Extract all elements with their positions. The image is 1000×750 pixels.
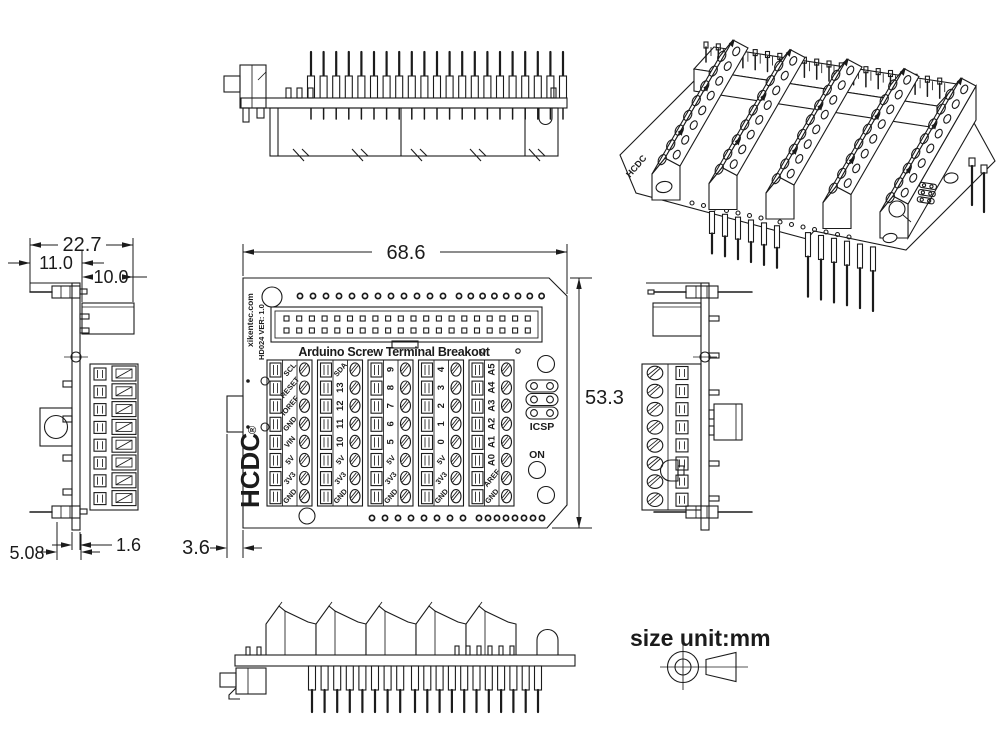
led-front (537, 630, 558, 656)
terminal-label: 6 (385, 421, 396, 426)
terminal-label: A4 (486, 381, 497, 394)
projection-symbol-icon (660, 645, 748, 690)
terminal-label: 3 (436, 385, 447, 390)
dim-pin-pitch: 5.08 (9, 543, 44, 563)
isometric-view: HCDC (620, 39, 995, 311)
brand-url: xikentec.com (245, 293, 255, 347)
dim-pcb-thickness: 1.6 (116, 535, 141, 555)
technical-drawing-page: 22.7 11.0 10.0 5.08 1.6 (0, 0, 1000, 750)
terminal-block-front (366, 606, 416, 655)
terminal-label: 12 (335, 400, 346, 411)
terminal-label: 2 (436, 403, 447, 408)
dim-left-pin-offset: 11.0 (39, 253, 73, 273)
board-title: Arduino Screw Terminal Breakout (298, 345, 490, 359)
terminal-label: 10 (335, 437, 346, 448)
unit-note: size unit:mm (630, 625, 771, 690)
on-led-label: ON (529, 449, 545, 461)
terminal-block-front (316, 606, 366, 655)
terminal-label: 7 (385, 403, 396, 408)
main-top-view: Arduino Screw Terminal Breakout xikentec… (227, 278, 567, 528)
size-unit-label: size unit:mm (630, 625, 771, 651)
drawing-sheet: 22.7 11.0 10.0 5.08 1.6 (0, 0, 1000, 750)
terminal-label: A2 (486, 418, 497, 430)
terminal-label: 5 (385, 439, 396, 445)
terminal-label: A5 (486, 363, 497, 376)
logo-hcdc: HCDC (235, 433, 265, 508)
iso-led (889, 201, 905, 217)
terminal-label: 9 (385, 367, 396, 372)
terminal-label: 4 (436, 366, 447, 372)
icsp-label: ICSP (530, 421, 555, 433)
dim-board-height: 53.3 (585, 387, 624, 409)
front-view (220, 602, 575, 712)
pcb-left-tab (227, 396, 243, 432)
model-version: HD024 VER: 1.0 (257, 304, 266, 360)
terminal-label: A3 (486, 400, 497, 412)
terminal-label: 8 (385, 385, 396, 390)
terminal-label: 13 (335, 382, 346, 393)
right-side-view (642, 283, 752, 530)
terminal-label: 11 (335, 418, 346, 429)
dim-edge-offset: 3.6 (182, 537, 210, 559)
terminal-block-front (266, 606, 316, 655)
terminal-label: A1 (486, 435, 497, 448)
rear-view (224, 52, 567, 161)
dim-board-width: 68.6 (387, 242, 426, 264)
terminal-label: A0 (486, 454, 497, 466)
dim-left-body-width: 10.0 (93, 267, 128, 287)
left-side-view (30, 283, 138, 530)
led-side (661, 460, 679, 481)
terminal-label: 0 (436, 439, 447, 444)
terminal-label: 1 (436, 420, 447, 426)
